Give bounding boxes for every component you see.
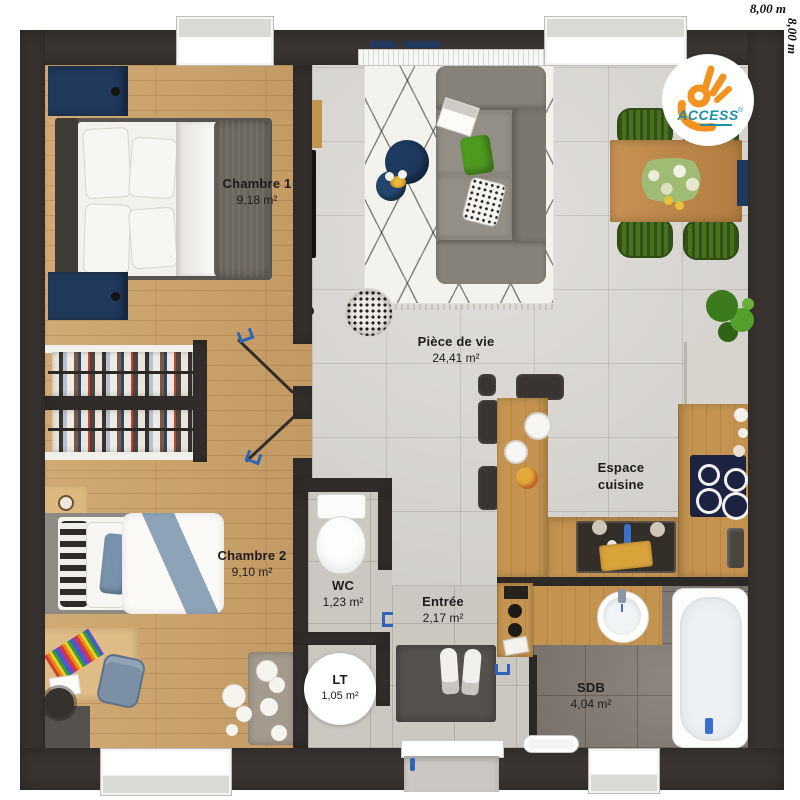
wall-wc-right [378, 492, 392, 570]
sofa-cushion-green [459, 134, 495, 176]
teddy-bear [222, 684, 246, 708]
closet-rail [48, 428, 196, 431]
room-label-sdb: SDB 4,04 m² [571, 680, 612, 712]
closet-rail [48, 371, 196, 374]
coffee-machine [727, 528, 744, 568]
wall-lt-right [376, 645, 390, 706]
closet-clothes-rack [52, 410, 193, 452]
counter-jars [734, 408, 748, 422]
towel-rail [524, 736, 578, 752]
wall-shelf-decor [370, 41, 396, 48]
sneaker [439, 647, 459, 694]
entry-door-handle [410, 758, 415, 771]
nightstand-clock [58, 495, 74, 511]
window-bedroom1 [176, 16, 274, 66]
teddy-bear [256, 660, 278, 682]
room-label-espace-cuisine: Espace cuisine [598, 460, 645, 494]
basin-faucet [618, 589, 626, 603]
floor-plan: Chambre 1 9,18 m² Pièce de vie 24,41 m² … [0, 0, 800, 800]
room-label-chambre1: Chambre 1 9,18 m² [223, 176, 292, 208]
table-flowers [628, 158, 714, 202]
bed1-headboard [55, 118, 78, 280]
closet-clothes-rack [52, 352, 193, 396]
wall-kitchen-sdb [497, 577, 748, 586]
room-label-wc: WC 1,23 m² [323, 578, 364, 610]
room-area: 24,41 m² [418, 351, 495, 367]
entry-door-leaf [404, 756, 499, 792]
room-name: Pièce de vie [418, 334, 495, 351]
logo-underline [700, 124, 732, 126]
room-area: 9,10 m² [218, 565, 287, 581]
radiator [358, 49, 548, 66]
cutting-board [599, 540, 653, 571]
bed1-pillow [83, 203, 131, 275]
room-name: Chambre 1 [223, 176, 292, 193]
room-name: cuisine [598, 477, 645, 494]
wall-wc-top [293, 478, 392, 492]
wall-entree-sdb [529, 655, 537, 748]
wall-door-stub [293, 458, 312, 480]
bed2-duvet [122, 513, 224, 614]
bed1-pillow [128, 206, 178, 269]
room-label-entree: Entrée 2,17 m² [422, 594, 464, 626]
table-decor-plates [385, 172, 394, 181]
wall-closet-divider [45, 396, 207, 410]
room-area: 9,18 m² [223, 193, 292, 209]
bar-plate [524, 412, 552, 440]
bar-stool [516, 374, 564, 400]
bed1-pillow [82, 127, 132, 199]
sofa-armrest [436, 240, 546, 284]
bar-stool [478, 374, 496, 396]
bed1-pillow [128, 136, 178, 199]
console-records [508, 604, 522, 618]
window-bedroom2 [100, 748, 232, 796]
bed2-pillow-striped [60, 521, 88, 607]
table-lemons [664, 196, 673, 205]
room-area: 1,05 m² [321, 689, 358, 703]
wall-closet-side [193, 340, 207, 462]
room-name: Espace [598, 460, 645, 477]
cooktop-burner [724, 468, 748, 492]
room-name: Entrée [422, 594, 464, 611]
cooktop-burner [698, 464, 720, 486]
fruit-bowl [516, 467, 538, 489]
kitchen-tall-cabinet [684, 342, 748, 404]
wall-wc-lt-left [293, 492, 308, 748]
dining-chair [683, 220, 739, 260]
dimension-right: 8,00 m [784, 18, 800, 54]
access-logo-graphic: ACCESS ® [662, 54, 754, 146]
room-area: 1,23 m² [323, 595, 364, 611]
door-handle-icon [382, 612, 393, 627]
potted-plant [706, 290, 738, 322]
room-name: WC [323, 578, 364, 595]
bed1-sheet [176, 122, 218, 276]
room-name: LT [321, 672, 358, 689]
room-label-chambre2: Chambre 2 9,10 m² [218, 548, 287, 580]
bathtub-faucet [705, 718, 713, 734]
nightstand [48, 66, 128, 116]
wall-bedroom1-living [293, 65, 312, 344]
toilet-bowl [316, 516, 366, 574]
sofa-backrest [512, 108, 546, 242]
desk-chair [44, 688, 74, 718]
room-label-lt: LT 1,05 m² [321, 672, 358, 703]
counter-bowls [592, 520, 607, 535]
logo-text: ACCESS [676, 107, 739, 123]
window-sdb [588, 748, 660, 794]
room-name: Chambre 2 [218, 548, 287, 565]
dining-chair [617, 218, 673, 258]
nightstand [48, 272, 128, 320]
wall-door-stub [293, 386, 312, 419]
closet-shelf [45, 452, 196, 460]
access-logo: ACCESS ® [662, 54, 754, 146]
room-name: SDB [571, 680, 612, 697]
bar-plate [504, 440, 528, 464]
room-area: 4,04 m² [571, 697, 612, 713]
dimension-top: 8,00 m [750, 1, 786, 17]
logo-registered: ® [738, 106, 744, 114]
door-handle-icon [495, 664, 510, 675]
wall-shelf-decor [404, 41, 440, 48]
room-area: 2,17 m² [422, 611, 464, 627]
pouf [346, 290, 392, 336]
wall-exterior-left [20, 30, 45, 790]
console-speaker [504, 586, 528, 599]
wall-wc-lt-divider [293, 632, 390, 645]
room-label-piece-de-vie: Pièce de vie 24,41 m² [418, 334, 495, 366]
